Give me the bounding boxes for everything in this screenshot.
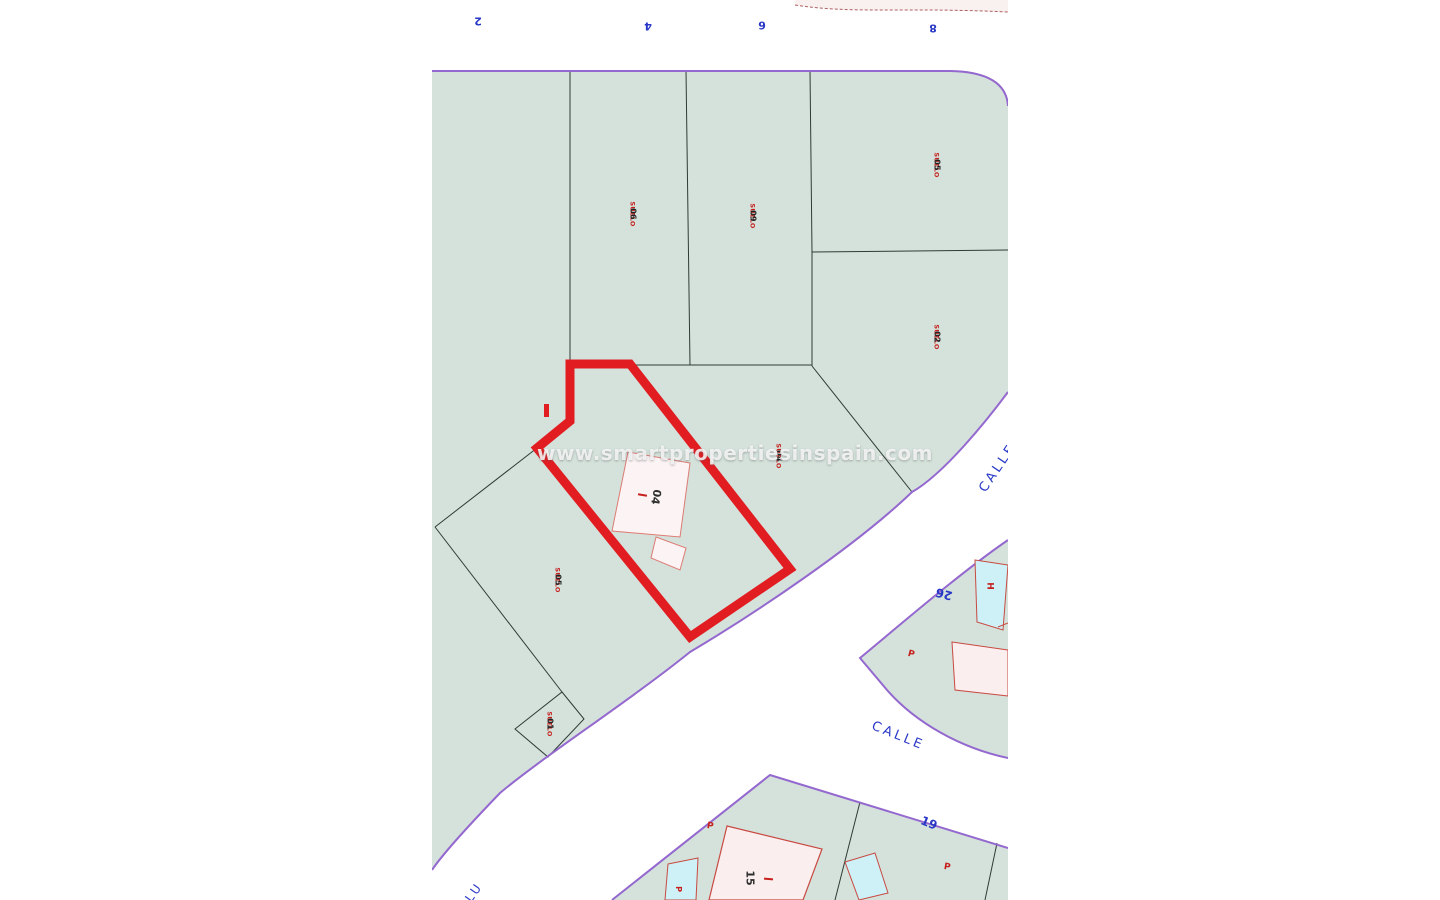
cadastral-map: www.smartpropertiesinspain.com 2 4 6 8 S… — [432, 0, 1008, 900]
pool-h-building — [975, 560, 1008, 630]
street-number-4: 4 — [644, 21, 652, 32]
street-number-8: 8 — [929, 23, 937, 34]
parcel-label-suelo-02: SUELO 02 — [933, 324, 940, 350]
building-15-number: 15 — [745, 870, 756, 885]
pool-bottom-left — [665, 858, 698, 900]
street-number-2: 2 — [474, 16, 482, 27]
red-tick-mark — [544, 404, 549, 417]
parcel-number: 06 — [628, 208, 636, 220]
parcel-label-suelo-05-top: SUELO 05 — [933, 152, 940, 178]
house-number-26: 26 — [934, 586, 953, 602]
parcel-label-suelo-05-left: SUELO 05 — [554, 567, 561, 593]
street-number-6: 6 — [758, 20, 766, 31]
pool-letter-p-small: P — [674, 886, 682, 892]
parcel-number: 05 — [932, 159, 940, 171]
parcel-number: 02 — [932, 331, 940, 343]
porch-letter-p-bottom-left: P — [706, 822, 714, 832]
plot-building-number: 04 — [649, 489, 662, 506]
parcel-label-suelo-09: SUELO 09 — [749, 203, 756, 229]
pink-building-right — [952, 642, 1008, 696]
porch-letter-p-bottom-right: P — [943, 863, 951, 873]
parcel-number: 09 — [748, 210, 756, 222]
parcel-label-suelo-06: SUELO 06 — [629, 201, 636, 227]
watermark: www.smartpropertiesinspain.com — [537, 441, 933, 465]
parcel-label-suelo-01: SUELO 01 — [546, 711, 553, 737]
pool-letter-h: H — [985, 582, 994, 590]
parcel-number: 01 — [545, 718, 553, 730]
parcel-number: 05 — [553, 574, 561, 586]
